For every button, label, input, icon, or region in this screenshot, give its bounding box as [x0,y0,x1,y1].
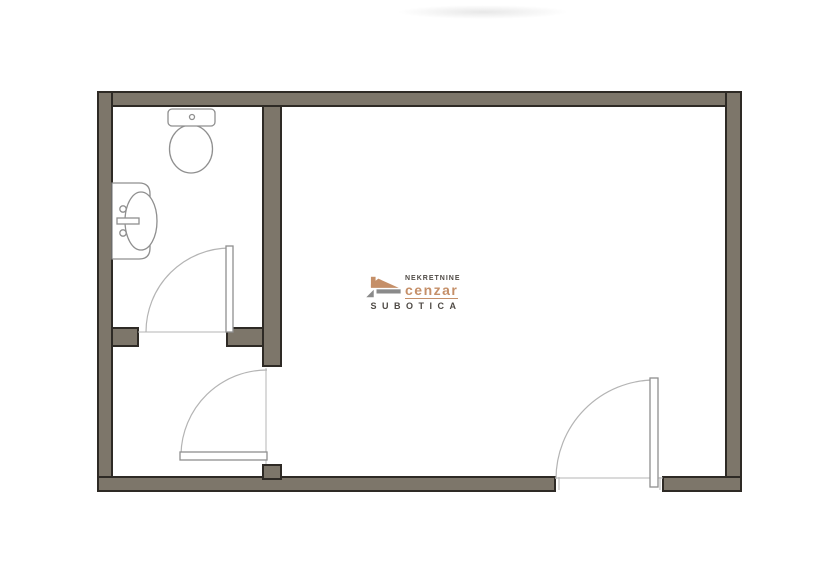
sink-lever [117,218,139,224]
wall-top [98,92,741,106]
floorplan-image: NEKRETNINE cenzar SUBOTICA [0,0,840,584]
watermark-text-block: NEKRETNINE cenzar [405,272,461,299]
watermark-brand: cenzar [405,283,458,299]
sink-tap-top [120,206,126,212]
bathroom-door-arc [146,248,230,332]
wall-bathroom-bottom-left-stub [112,328,138,346]
wall-interior-vertical [263,106,281,366]
sink-tap-bottom [120,230,126,236]
toilet-flush-button [190,115,195,120]
wall-interior-bottom-stub [263,465,281,479]
house-logo-icon [364,274,402,300]
watermark-city: SUBOTICA [366,302,466,311]
agency-watermark: NEKRETNINE cenzar SUBOTICA [364,272,466,311]
entry-door-leaf [650,378,658,487]
wall-right [726,92,741,491]
wall-bottom-right [663,477,741,491]
entry-door-arc [556,380,654,479]
watermark-top-row: NEKRETNINE cenzar [364,272,466,300]
hallway-door-arc [181,370,267,454]
wall-left [98,92,112,491]
toilet-bowl [170,125,213,173]
wall-bottom-left [98,477,555,491]
watermark-line1: NEKRETNINE [405,275,461,282]
bathroom-door-leaf [226,246,233,332]
hallway-door-leaf [180,452,267,460]
